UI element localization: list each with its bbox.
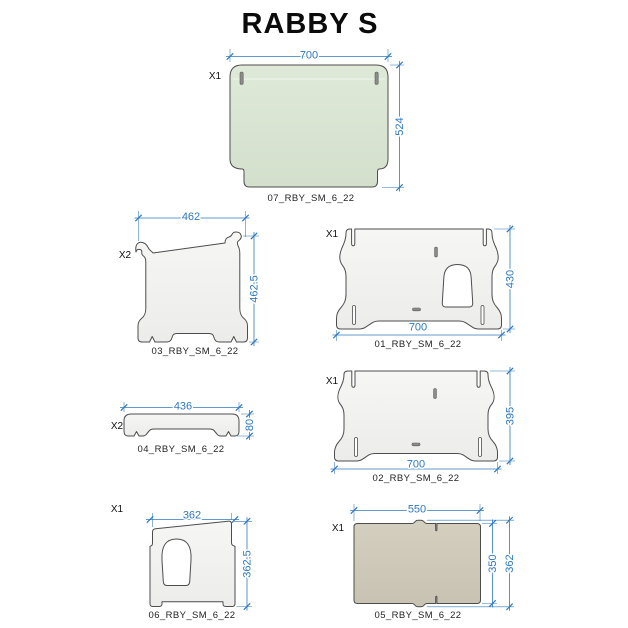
part-05-outline [354,520,481,607]
dimension-value: 700 [409,322,427,334]
part-01-label: 01_RBY_SM_6_22 [375,339,462,350]
part-01-foot-slot-right [481,306,484,325]
part-02-bottom-slot [412,443,420,446]
part-01-group: 430 700 X1 01_RBY_SM_6_22 [326,225,517,350]
dimension-part05-width: 550 [350,504,484,522]
drawing-sheet: RABBY S 700 524 X1 07_RBY_SM_6_22 462 [0,0,628,628]
part-06-quantity: X1 [111,504,124,515]
part-03-group: 462 462.5 X2 03_RBY_SM_6_22 [119,211,261,357]
part-01-foot-slot-left [353,306,356,325]
part-06-hand-hole [162,539,191,586]
part-07-label: 07_RBY_SM_6_22 [268,193,355,204]
dimension-value: 362 [504,554,516,572]
part-05-quantity: X1 [332,523,345,534]
part-07-outline [230,65,388,187]
dimension-value: 436 [174,401,192,413]
part-02-outline [335,371,498,461]
part-07-group: 700 524 X1 07_RBY_SM_6_22 [209,49,406,204]
part-04-group: 436 80 X2 04_RBY_SM_6_22 [111,401,256,456]
part-01-top-slot [435,247,438,257]
dimension-part06-height: 362.5 [233,517,254,610]
dimension-value: 550 [408,504,426,516]
drawing-title: RABBY S [242,8,379,40]
part-02-quantity: X1 [326,376,339,387]
part-04-quantity: X2 [111,421,124,432]
part-01-bottom-slot [413,308,421,311]
part-02-group: 395 700 X1 02_RBY_SM_6_22 [326,367,517,484]
part-03-outline [136,232,248,342]
dimension-value: 700 [407,459,425,471]
part-03-label: 03_RBY_SM_6_22 [152,346,239,357]
part-05-group: 550 350 362 X1 05_RBY_SM_6_22 [332,504,516,622]
part-07-slot-left [240,72,243,85]
part-01-hand-hole [442,265,472,308]
dimension-value: 524 [394,117,406,135]
dimension-value: 430 [505,270,517,288]
part-01-quantity: X1 [326,229,339,240]
part-03-quantity: X2 [119,250,132,261]
dimension-part04-height: 80 [237,410,256,440]
dimension-value: 80 [244,419,256,431]
dimension-value: 395 [505,407,517,425]
part-02-foot-slot-right [479,438,482,457]
dimension-value: 362.5 [242,550,254,578]
part-07-quantity: X1 [209,71,222,82]
part-02-foot-slot-left [355,438,358,457]
part-07-slot-right [375,72,378,85]
technical-drawing-canvas: RABBY S 700 524 X1 07_RBY_SM_6_22 462 [0,0,628,628]
part-04-outline [124,414,239,436]
dimension-value: 462.5 [249,275,261,303]
part-02-label: 02_RBY_SM_6_22 [373,473,460,484]
part-06-group: 362 362.5 X1 06_RBY_SM_6_22 [111,504,254,621]
dimension-part04-width: 436 [120,401,243,413]
dimension-value: 362 [183,510,201,522]
part-01-outline [337,229,502,329]
dimension-part07-width: 700 [226,49,392,62]
part-02-top-slot [434,389,437,399]
part-06-label: 06_RBY_SM_6_22 [149,610,236,621]
dimension-part05-height-inner: 350 [482,520,499,608]
dimension-value: 350 [487,554,499,572]
dimension-value: 700 [300,50,318,62]
part-05-label: 05_RBY_SM_6_22 [375,610,462,621]
dimension-value: 462 [182,211,200,223]
part-04-label: 04_RBY_SM_6_22 [138,444,225,455]
